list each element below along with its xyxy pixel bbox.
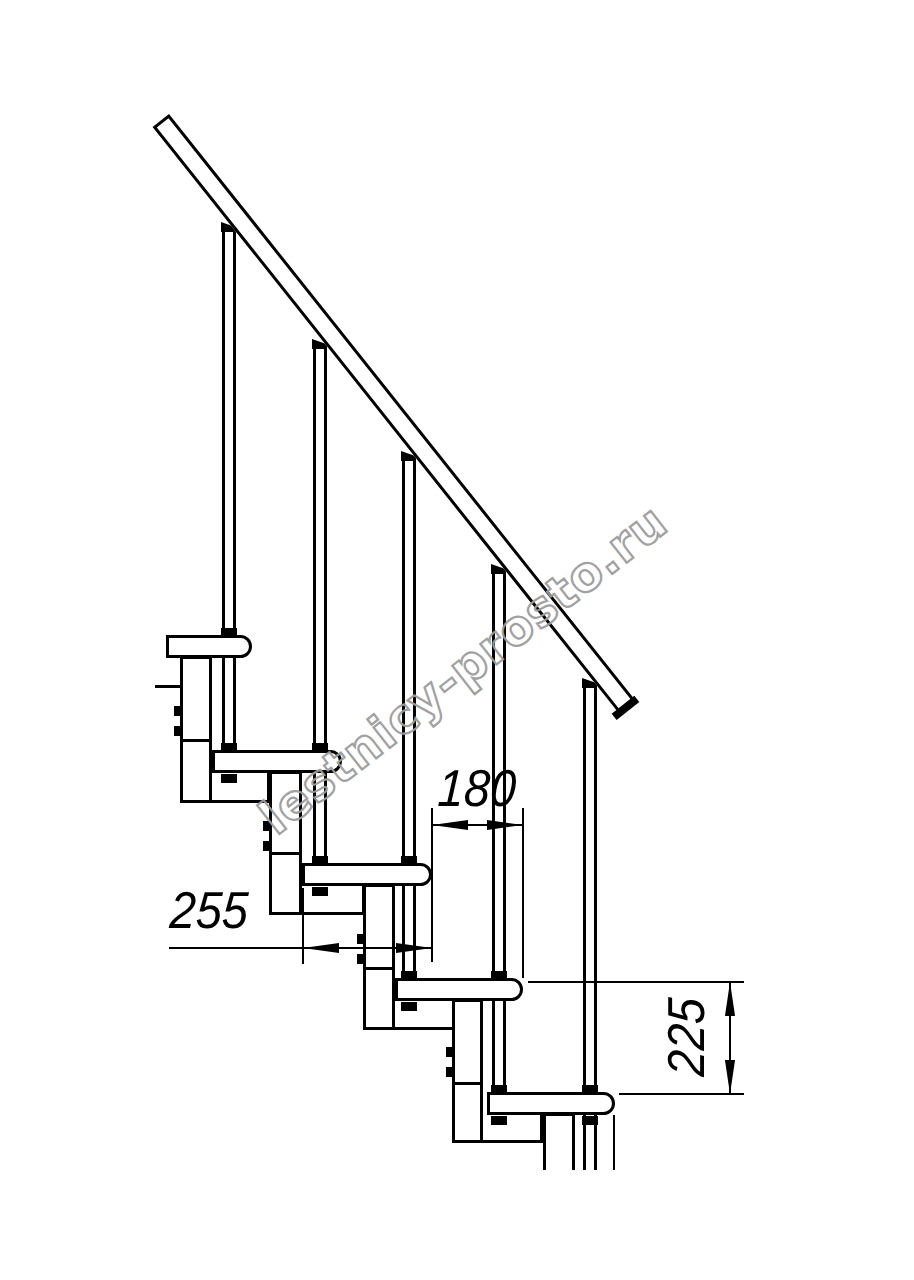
baluster-foot: [221, 628, 237, 635]
dimension-label-going: 180: [428, 762, 526, 814]
stringer-column-5: [543, 1113, 575, 1170]
fastening-nut: [312, 887, 328, 896]
stringer-column-4: [452, 999, 483, 1143]
bolt-icon: [446, 1047, 454, 1057]
bolt-icon: [446, 1067, 454, 1077]
arrow-left-icon: [432, 820, 468, 831]
handrail-end-cap: [612, 696, 640, 720]
baluster-5: [583, 688, 597, 1092]
bolt-icon: [174, 726, 182, 736]
arrow-up-icon: [725, 982, 736, 1016]
extension-line: [528, 981, 744, 983]
tread-1: [166, 635, 252, 658]
stringer-column-3: [363, 884, 395, 1030]
baluster-lower-section-1: [222, 656, 236, 750]
baluster-foot: [401, 971, 417, 978]
connector-tick: [155, 685, 181, 688]
tread-3: [302, 863, 432, 886]
stringer-divider-4: [455, 1082, 480, 1085]
baluster-foot: [491, 971, 507, 978]
fastening-nut: [221, 774, 237, 783]
dimension-line-tread-depth: [169, 947, 432, 949]
extension-line: [302, 888, 304, 964]
baluster-lower-section-3: [402, 884, 416, 978]
cut-line: [613, 1115, 615, 1170]
extension-line: [619, 1093, 744, 1095]
baluster-1: [222, 232, 236, 635]
tread-4: [395, 978, 523, 1001]
baluster-foot: [221, 743, 237, 750]
fastening-nut: [582, 1116, 598, 1125]
extension-line: [522, 808, 524, 978]
arrow-down-icon: [725, 1060, 736, 1094]
fastening-nut: [401, 1002, 417, 1011]
baluster-lower-section-4: [492, 999, 506, 1092]
baluster-foot: [491, 1085, 507, 1092]
staircase-technical-drawing: 180 255 225 lestnicy-prosto.ru: [0, 0, 914, 1280]
baluster-foot: [582, 1085, 598, 1092]
stringer-divider-1: [183, 739, 209, 742]
bolt-icon: [357, 954, 365, 964]
fastening-nut: [491, 1116, 507, 1125]
arrow-left-icon: [303, 943, 339, 954]
stringer-divider-3: [366, 967, 392, 970]
stringer-column-1: [180, 656, 212, 803]
baluster-foot: [312, 856, 328, 863]
baluster-foot: [401, 856, 417, 863]
baluster-2: [313, 349, 327, 750]
dimension-label-rise: 225: [660, 988, 712, 1086]
bolt-icon: [174, 706, 182, 716]
tread-5: [487, 1092, 615, 1115]
extension-line: [431, 808, 433, 962]
bolt-icon: [357, 934, 365, 944]
